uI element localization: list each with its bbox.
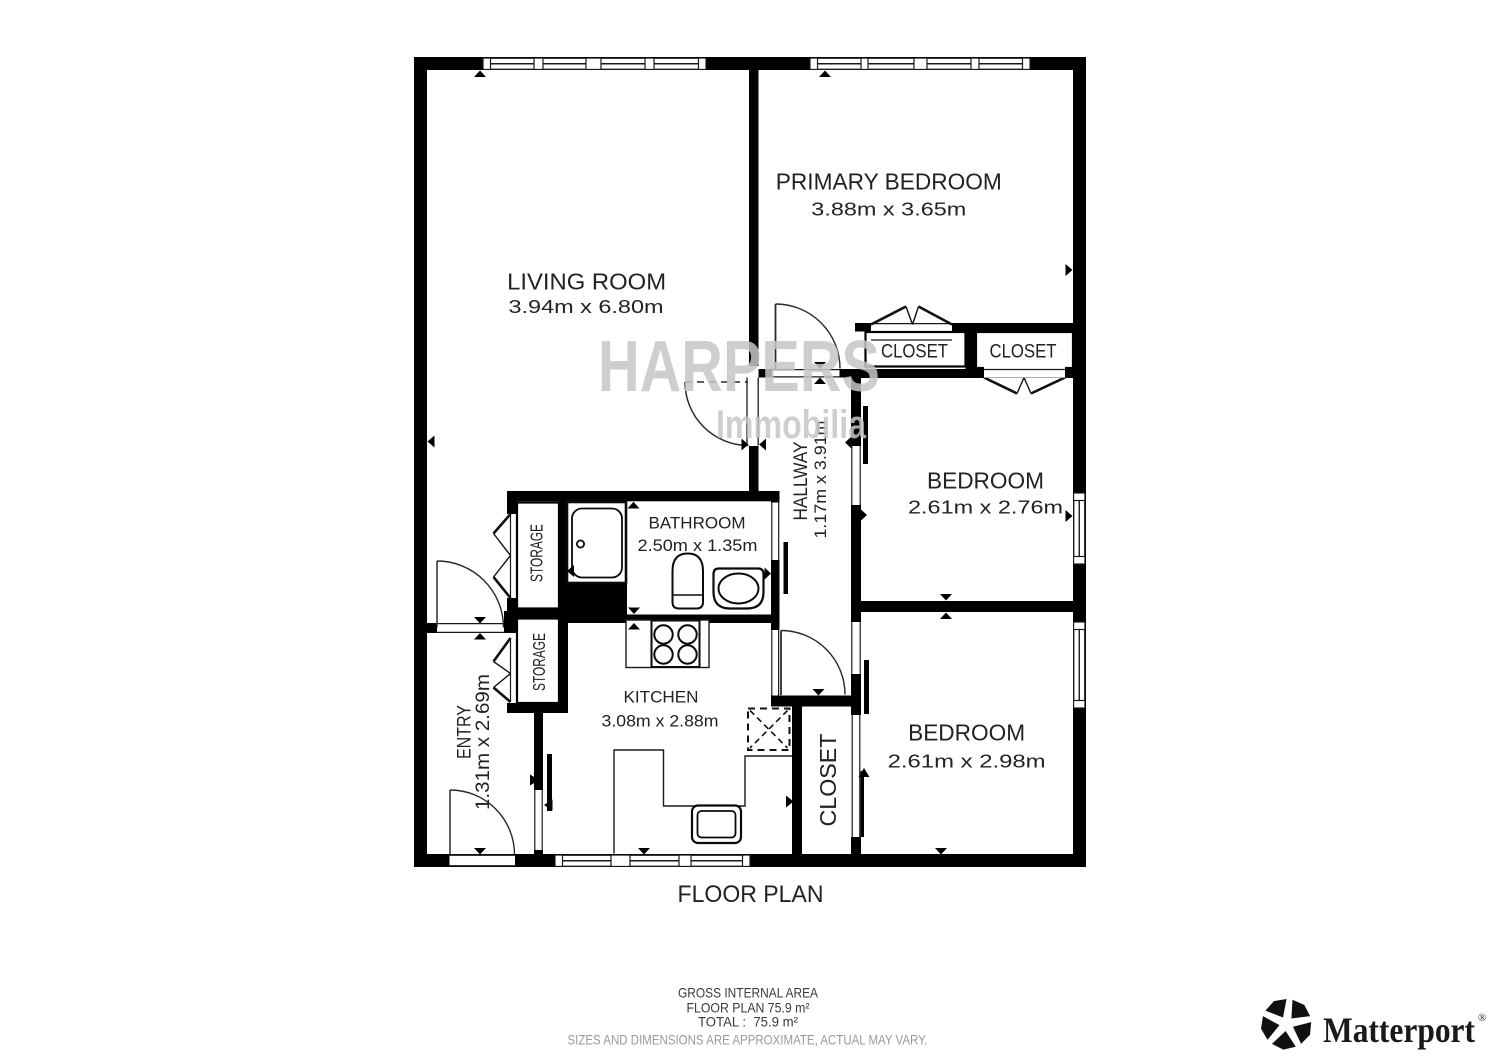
svg-text:STORAGE: STORAGE: [527, 524, 547, 582]
svg-text:CLOSET: CLOSET: [990, 341, 1057, 362]
svg-text:HALLWAY: HALLWAY: [791, 441, 812, 520]
svg-text:STORAGE: STORAGE: [529, 633, 549, 691]
svg-text:FLOOR PLAN: FLOOR PLAN: [678, 881, 824, 908]
svg-text:SIZES AND DIMENSIONS ARE APPRO: SIZES AND DIMENSIONS ARE APPROXIMATE, AC…: [568, 1032, 928, 1048]
svg-text:®: ®: [1478, 1012, 1486, 1024]
svg-text:2.61m x 2.76m: 2.61m x 2.76m: [908, 498, 1063, 518]
svg-text:Matterport: Matterport: [1323, 1010, 1475, 1050]
svg-text:BEDROOM: BEDROOM: [908, 720, 1025, 746]
svg-text:TOTAL : 75.9 m²: TOTAL : 75.9 m²: [698, 1014, 798, 1030]
svg-text:CLOSET: CLOSET: [815, 734, 841, 827]
svg-text:1.31m x 2.69m: 1.31m x 2.69m: [472, 674, 494, 810]
svg-text:3.94m x 6.80m: 3.94m x 6.80m: [509, 297, 664, 317]
svg-text:3.08m x 2.88m: 3.08m x 2.88m: [602, 713, 719, 731]
svg-text:PRIMARY BEDROOM: PRIMARY BEDROOM: [776, 169, 1002, 195]
svg-text:GROSS INTERNAL AREA: GROSS INTERNAL AREA: [678, 985, 819, 1001]
svg-text:2.50m x 1.35m: 2.50m x 1.35m: [638, 536, 758, 555]
svg-text:Immobilia: Immobilia: [716, 403, 867, 447]
svg-text:CLOSET: CLOSET: [881, 341, 948, 362]
svg-text:KITCHEN: KITCHEN: [624, 689, 699, 707]
svg-text:HARPERS: HARPERS: [598, 327, 880, 407]
svg-text:BEDROOM: BEDROOM: [927, 468, 1044, 494]
svg-text:BATHROOM: BATHROOM: [649, 514, 746, 532]
svg-text:LIVING ROOM: LIVING ROOM: [507, 269, 666, 295]
svg-text:2.61m x 2.98m: 2.61m x 2.98m: [888, 752, 1046, 772]
svg-text:3.88m x 3.65m: 3.88m x 3.65m: [811, 200, 966, 220]
